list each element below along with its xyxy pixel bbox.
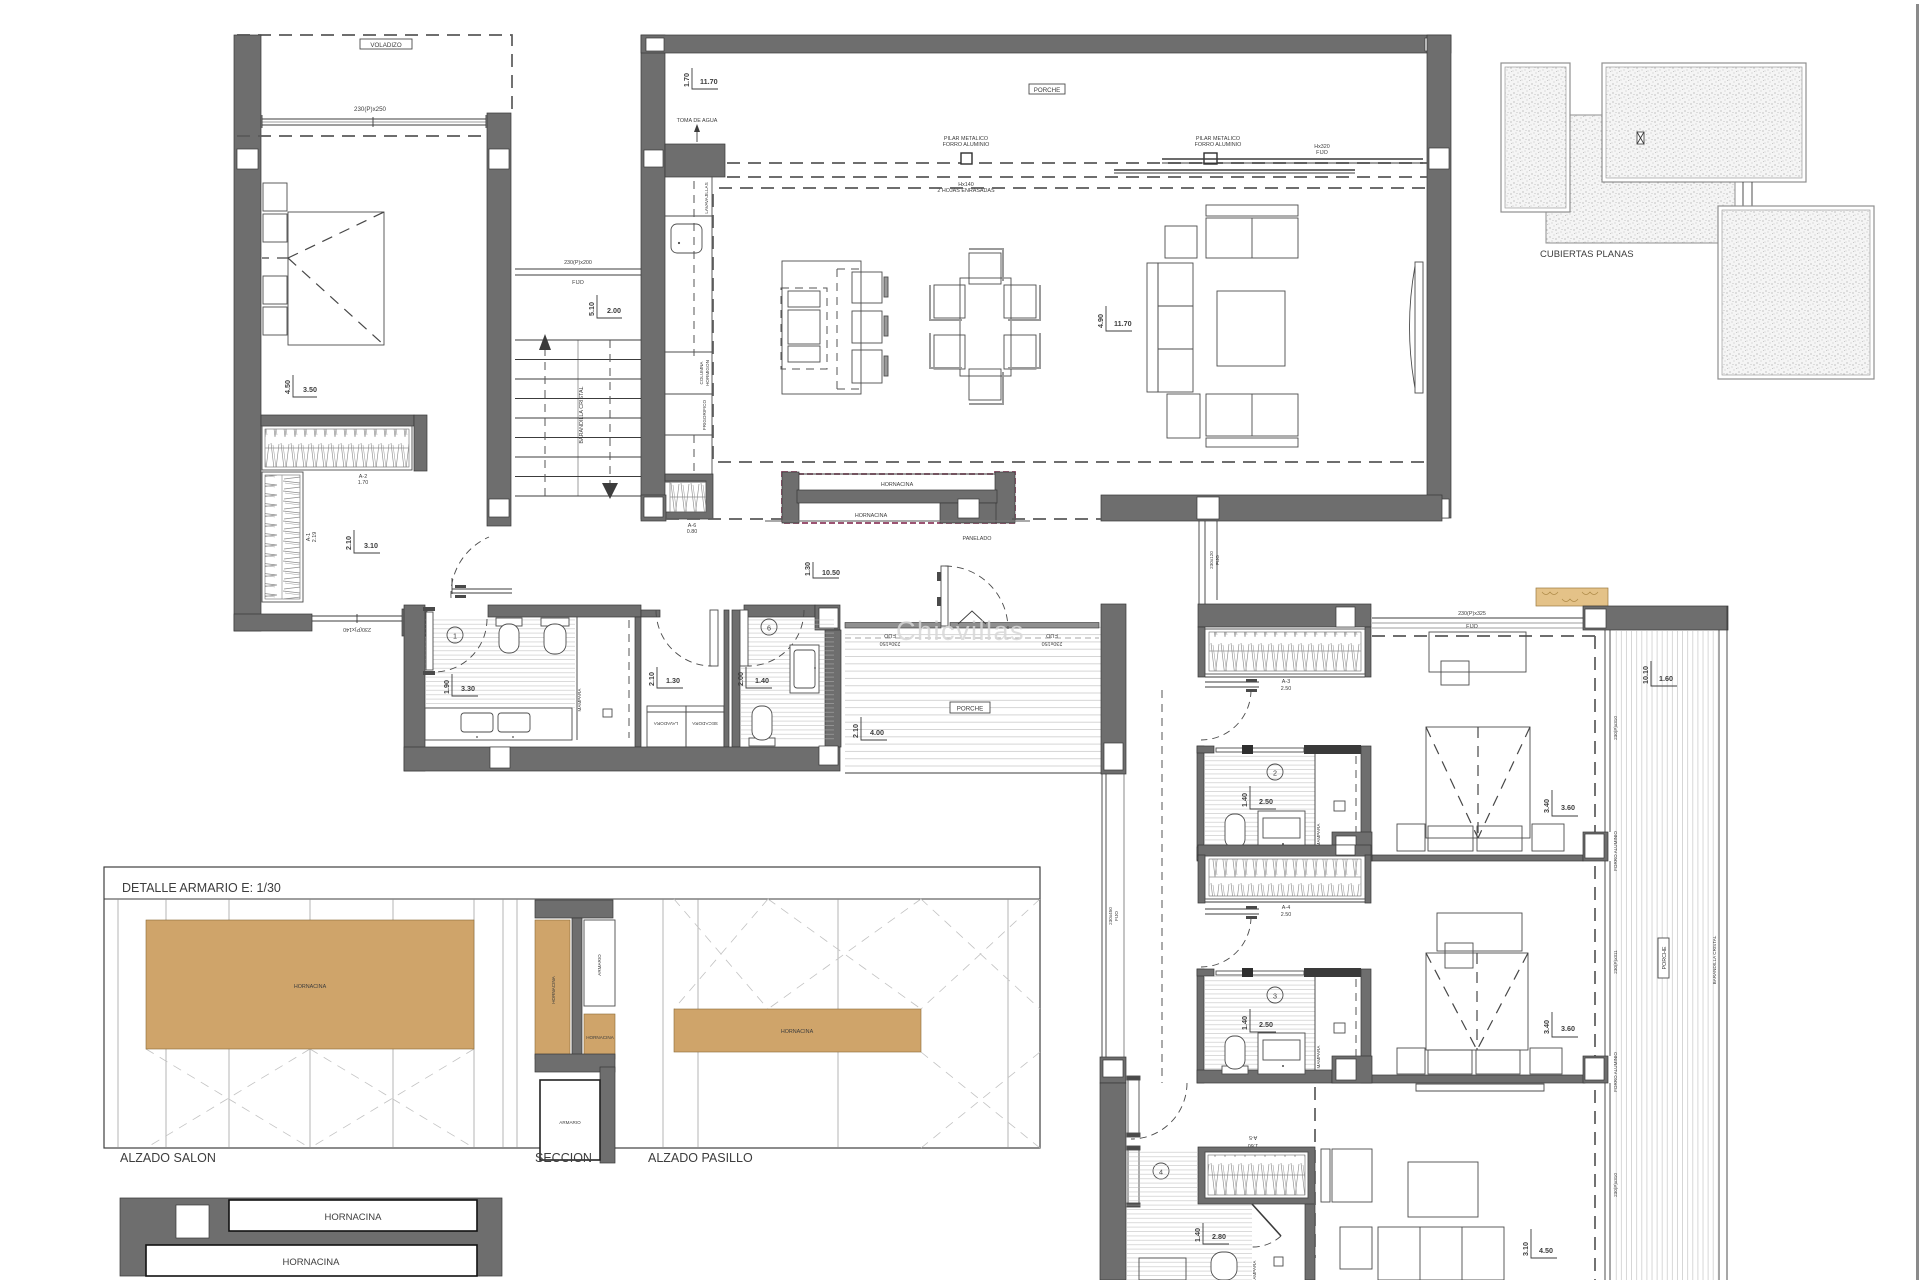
svg-text:2.00: 2.00: [736, 672, 745, 686]
svg-text:3.10: 3.10: [1521, 1242, 1530, 1256]
svg-text:2.19: 2.19: [312, 532, 318, 543]
svg-text:ARMARIO: ARMARIO: [597, 954, 602, 976]
svg-text:FORRO ALUMINIO: FORRO ALUMINIO: [1613, 1052, 1618, 1092]
svg-text:A-3: A-3: [1282, 679, 1290, 685]
svg-text:PORCHE: PORCHE: [1034, 87, 1060, 94]
svg-text:1.60: 1.60: [1659, 674, 1673, 683]
svg-text:MAMPARA: MAMPARA: [1252, 1260, 1257, 1280]
svg-text:230(P)x140: 230(P)x140: [343, 626, 371, 632]
svg-text:PORCHE: PORCHE: [1662, 946, 1668, 969]
svg-text:10.50: 10.50: [822, 568, 840, 577]
svg-text:1.30: 1.30: [666, 676, 680, 685]
svg-text:2 HOJAS ENRASADAS: 2 HOJAS ENRASADAS: [937, 188, 995, 194]
svg-text:ALZADO PASILLO: ALZADO PASILLO: [648, 1151, 753, 1165]
svg-text:230(P)x311: 230(P)x311: [1613, 950, 1618, 974]
svg-text:FIJO: FIJO: [1466, 624, 1478, 630]
svg-text:230x150: 230x150: [1042, 640, 1063, 646]
svg-text:10.10: 10.10: [1641, 666, 1650, 684]
svg-text:6: 6: [767, 624, 771, 633]
svg-text:FRIGORIFICO: FRIGORIFICO: [702, 400, 707, 431]
svg-text:2.10: 2.10: [647, 672, 656, 686]
svg-text:MAMPARA: MAMPARA: [1316, 823, 1321, 847]
svg-text:4.50: 4.50: [283, 380, 292, 394]
svg-text:4.50: 4.50: [1539, 1246, 1553, 1255]
svg-text:Chicvillas: Chicvillas: [896, 616, 1025, 646]
svg-text:2.50: 2.50: [1259, 1020, 1273, 1029]
svg-text:3.60: 3.60: [1561, 803, 1575, 812]
svg-text:230(P)x325: 230(P)x325: [1458, 611, 1486, 617]
svg-text:2.00: 2.00: [607, 306, 621, 315]
svg-text:2.50: 2.50: [1281, 912, 1292, 918]
svg-text:1.40: 1.40: [1240, 1016, 1249, 1030]
svg-text:HORNACINA: HORNACINA: [282, 1257, 340, 1268]
svg-text:1.40: 1.40: [1193, 1228, 1202, 1242]
svg-text:1: 1: [453, 632, 457, 641]
svg-text:230x120: 230x120: [1209, 551, 1214, 569]
svg-text:11.70: 11.70: [1114, 319, 1132, 328]
svg-text:230x450: 230x450: [1108, 907, 1113, 925]
svg-text:ALZADO SALON: ALZADO SALON: [120, 1151, 216, 1165]
svg-text:COLUMNA: COLUMNA: [699, 361, 704, 385]
svg-text:DETALLE ARMARIO E: 1/30: DETALLE ARMARIO E: 1/30: [122, 881, 281, 895]
svg-text:FIJO: FIJO: [1316, 150, 1328, 156]
svg-text:ARMARIO: ARMARIO: [559, 1120, 581, 1125]
svg-text:230(P)x310: 230(P)x310: [1613, 1173, 1618, 1197]
svg-text:0.80: 0.80: [687, 529, 698, 535]
svg-text:FIJO: FIJO: [1046, 632, 1058, 638]
svg-text:1.70: 1.70: [682, 73, 691, 87]
svg-text:HORNACINA: HORNACINA: [855, 513, 888, 519]
svg-text:3: 3: [1273, 992, 1277, 1001]
svg-text:230(P)x310: 230(P)x310: [1613, 716, 1618, 740]
svg-text:HORNACINA: HORNACINA: [881, 482, 914, 488]
svg-text:FORRO ALUMINIO: FORRO ALUMINIO: [943, 142, 990, 148]
svg-text:HORNACINA: HORNACINA: [586, 1035, 615, 1040]
svg-text:MAMPARA: MAMPARA: [1316, 1045, 1321, 1069]
svg-text:2.10: 2.10: [344, 536, 353, 550]
svg-text:MAMPARA: MAMPARA: [577, 688, 582, 712]
svg-text:PANELADO: PANELADO: [963, 536, 992, 542]
svg-text:3.30: 3.30: [461, 684, 475, 693]
svg-text:1.30: 1.30: [803, 562, 812, 576]
svg-text:PORCHE: PORCHE: [957, 706, 983, 713]
svg-text:FORRO ALUMINIO: FORRO ALUMINIO: [1613, 831, 1618, 871]
svg-text:2.80: 2.80: [1212, 1232, 1226, 1241]
svg-text:2.50: 2.50: [1259, 797, 1273, 806]
svg-text:3.60: 3.60: [1561, 1024, 1575, 1033]
svg-text:1.90: 1.90: [442, 680, 451, 694]
svg-text:HORNACINA: HORNACINA: [781, 1029, 814, 1035]
svg-text:4.00: 4.00: [870, 728, 884, 737]
svg-text:1.70: 1.70: [358, 480, 369, 486]
svg-text:HORNACINA: HORNACINA: [324, 1212, 382, 1223]
svg-text:230(P)x250: 230(P)x250: [354, 106, 387, 113]
svg-text:LAVAVAJILLAS: LAVAVAJILLAS: [704, 182, 709, 213]
svg-text:A-4: A-4: [1282, 905, 1290, 911]
svg-text:2: 2: [1273, 769, 1277, 778]
svg-text:FIJO: FIJO: [1114, 911, 1119, 921]
svg-text:4.90: 4.90: [1096, 314, 1105, 328]
svg-text:1.40: 1.40: [755, 676, 769, 685]
svg-text:3.10: 3.10: [364, 541, 378, 550]
svg-text:2.10: 2.10: [851, 724, 860, 738]
svg-text:FIJO: FIJO: [572, 280, 584, 286]
svg-text:SECADORA: SECADORA: [691, 721, 718, 726]
svg-text:3.50: 3.50: [303, 385, 317, 394]
svg-text:VOLADIZO: VOLADIZO: [370, 42, 401, 49]
svg-text:FORRO ALUMINIO: FORRO ALUMINIO: [1195, 142, 1242, 148]
svg-text:LAVADORA: LAVADORA: [653, 721, 678, 726]
svg-text:A-5: A-5: [1249, 1134, 1257, 1140]
svg-text:SECCION: SECCION: [535, 1151, 592, 1165]
svg-text:3.40: 3.40: [1542, 1020, 1551, 1034]
svg-text:11.70: 11.70: [700, 77, 718, 86]
svg-text:HORNACINA: HORNACINA: [551, 975, 556, 1004]
svg-text:FIJO: FIJO: [884, 632, 896, 638]
svg-text:1.40: 1.40: [1240, 793, 1249, 807]
svg-text:2.50: 2.50: [1281, 686, 1292, 692]
svg-text:BARANDILLA CRISTAL: BARANDILLA CRISTAL: [1712, 935, 1717, 984]
svg-text:BARANDILLA CRISTAL: BARANDILLA CRISTAL: [579, 386, 585, 443]
svg-text:230(P)x200: 230(P)x200: [564, 260, 592, 266]
svg-text:TOMA DE AGUA: TOMA DE AGUA: [677, 118, 718, 124]
svg-text:3.40: 3.40: [1542, 799, 1551, 813]
svg-text:CUBIERTAS PLANAS: CUBIERTAS PLANAS: [1540, 249, 1634, 260]
svg-text:HORNACINA: HORNACINA: [294, 984, 327, 990]
svg-text:FIJO: FIJO: [1215, 555, 1220, 565]
svg-text:5.10: 5.10: [587, 302, 596, 316]
svg-text:HORMIGON: HORMIGON: [705, 360, 710, 386]
